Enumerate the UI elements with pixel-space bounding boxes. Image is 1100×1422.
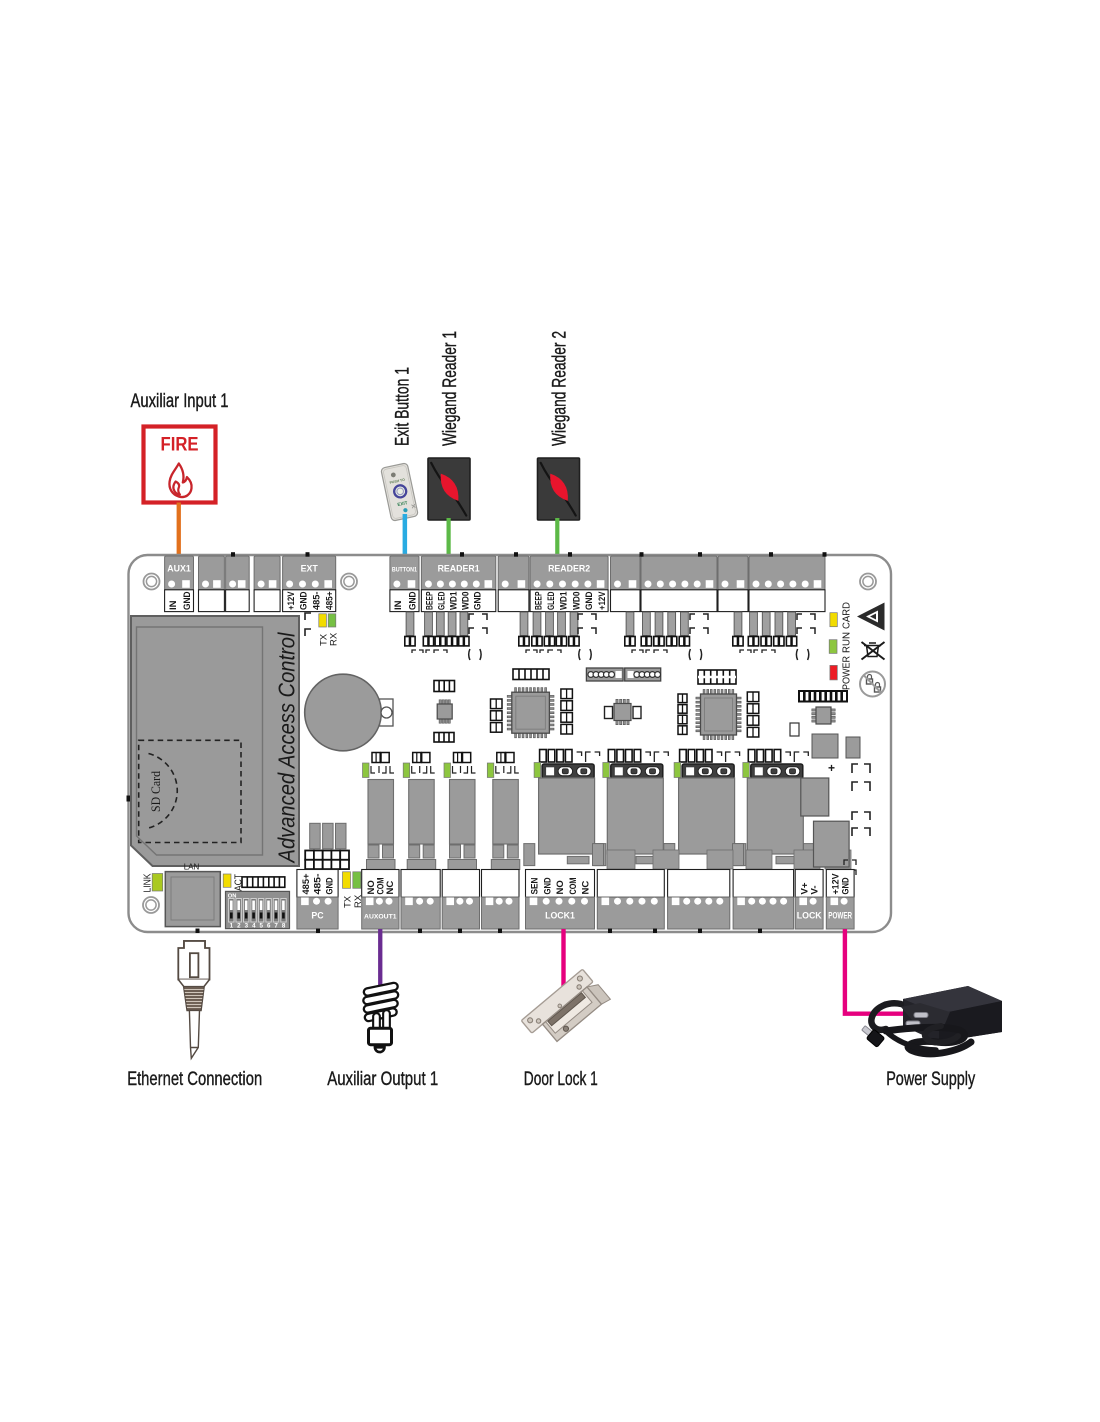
svg-text:6: 6	[267, 922, 271, 929]
svg-text:AUXOUT1: AUXOUT1	[364, 914, 397, 921]
svg-text:NC: NC	[385, 881, 396, 895]
svg-text:GND: GND	[324, 877, 335, 894]
svg-text:RX: RX	[329, 632, 340, 646]
svg-text:Auxiliar Input 1: Auxiliar Input 1	[131, 391, 229, 412]
svg-text:485-: 485-	[312, 592, 323, 611]
svg-text:GLED: GLED	[546, 591, 557, 610]
svg-text:IN: IN	[168, 600, 179, 610]
svg-text:485+: 485+	[324, 591, 335, 610]
svg-text:RUN: RUN	[842, 632, 853, 653]
svg-text:NC: NC	[581, 881, 592, 895]
svg-text:+12V: +12V	[286, 591, 297, 610]
svg-text:GLED: GLED	[437, 591, 448, 610]
svg-text:WD0: WD0	[571, 592, 582, 611]
svg-text:LOCK1: LOCK1	[545, 911, 575, 921]
svg-text:BEEP: BEEP	[425, 591, 436, 610]
svg-text:Auxiliar Output 1: Auxiliar Output 1	[327, 1068, 438, 1090]
svg-text:Power Supply: Power Supply	[886, 1068, 975, 1090]
svg-text:WD1: WD1	[449, 591, 460, 610]
svg-text:GND: GND	[408, 591, 419, 610]
svg-text:Ethernet Connection: Ethernet Connection	[127, 1068, 262, 1090]
svg-text:LAN: LAN	[184, 863, 200, 872]
svg-text:2: 2	[237, 922, 241, 929]
svg-text:CARD: CARD	[842, 602, 853, 629]
svg-text:PC: PC	[311, 911, 324, 921]
svg-text:8: 8	[282, 922, 286, 929]
svg-text:1: 1	[230, 922, 234, 929]
svg-text:GND: GND	[182, 591, 193, 610]
svg-text:GND: GND	[840, 877, 851, 894]
svg-text:NO: NO	[555, 880, 566, 895]
svg-text:3: 3	[245, 922, 249, 929]
svg-text:GND: GND	[543, 877, 554, 894]
svg-text:Wiegand Reader 2: Wiegand Reader 2	[549, 331, 571, 446]
svg-text:+12V: +12V	[597, 591, 608, 610]
svg-text:5: 5	[259, 922, 263, 929]
svg-text:SD Card: SD Card	[149, 770, 163, 812]
svg-text:BUTTON1: BUTTON1	[392, 567, 417, 574]
svg-text:V-: V-	[809, 885, 820, 894]
svg-text:+: +	[828, 761, 835, 775]
svg-text:AUX1: AUX1	[167, 564, 191, 574]
svg-text:Exit Button 1: Exit Button 1	[392, 367, 414, 446]
svg-text:Wiegand Reader 1: Wiegand Reader 1	[439, 331, 461, 446]
svg-text:7: 7	[274, 922, 278, 929]
svg-text:POWER: POWER	[828, 911, 852, 921]
svg-text:4: 4	[252, 922, 256, 929]
svg-text:LOCK: LOCK	[797, 911, 823, 921]
svg-text:GND: GND	[299, 591, 310, 610]
svg-text:READER1: READER1	[438, 564, 480, 574]
svg-text:Door Lock 1: Door Lock 1	[524, 1068, 598, 1090]
svg-text:FIRE: FIRE	[161, 434, 199, 456]
svg-text:COM: COM	[568, 878, 579, 895]
svg-text:485+: 485+	[301, 873, 312, 894]
svg-text:EXT: EXT	[301, 564, 319, 574]
svg-text:LINK: LINK	[143, 873, 154, 892]
svg-text:SEN: SEN	[530, 877, 541, 894]
svg-text:BEEP: BEEP	[533, 591, 544, 610]
svg-text:READER2: READER2	[548, 564, 590, 574]
svg-text:GND: GND	[473, 591, 484, 610]
svg-text:485-: 485-	[313, 874, 324, 895]
svg-text:POWER: POWER	[842, 656, 853, 690]
svg-text:WD0: WD0	[461, 592, 472, 611]
svg-text:GND: GND	[584, 591, 595, 610]
svg-text:WD1: WD1	[559, 591, 570, 610]
svg-text:Advanced Access Control: Advanced Access Control	[274, 632, 300, 864]
svg-text:IN: IN	[393, 600, 404, 610]
